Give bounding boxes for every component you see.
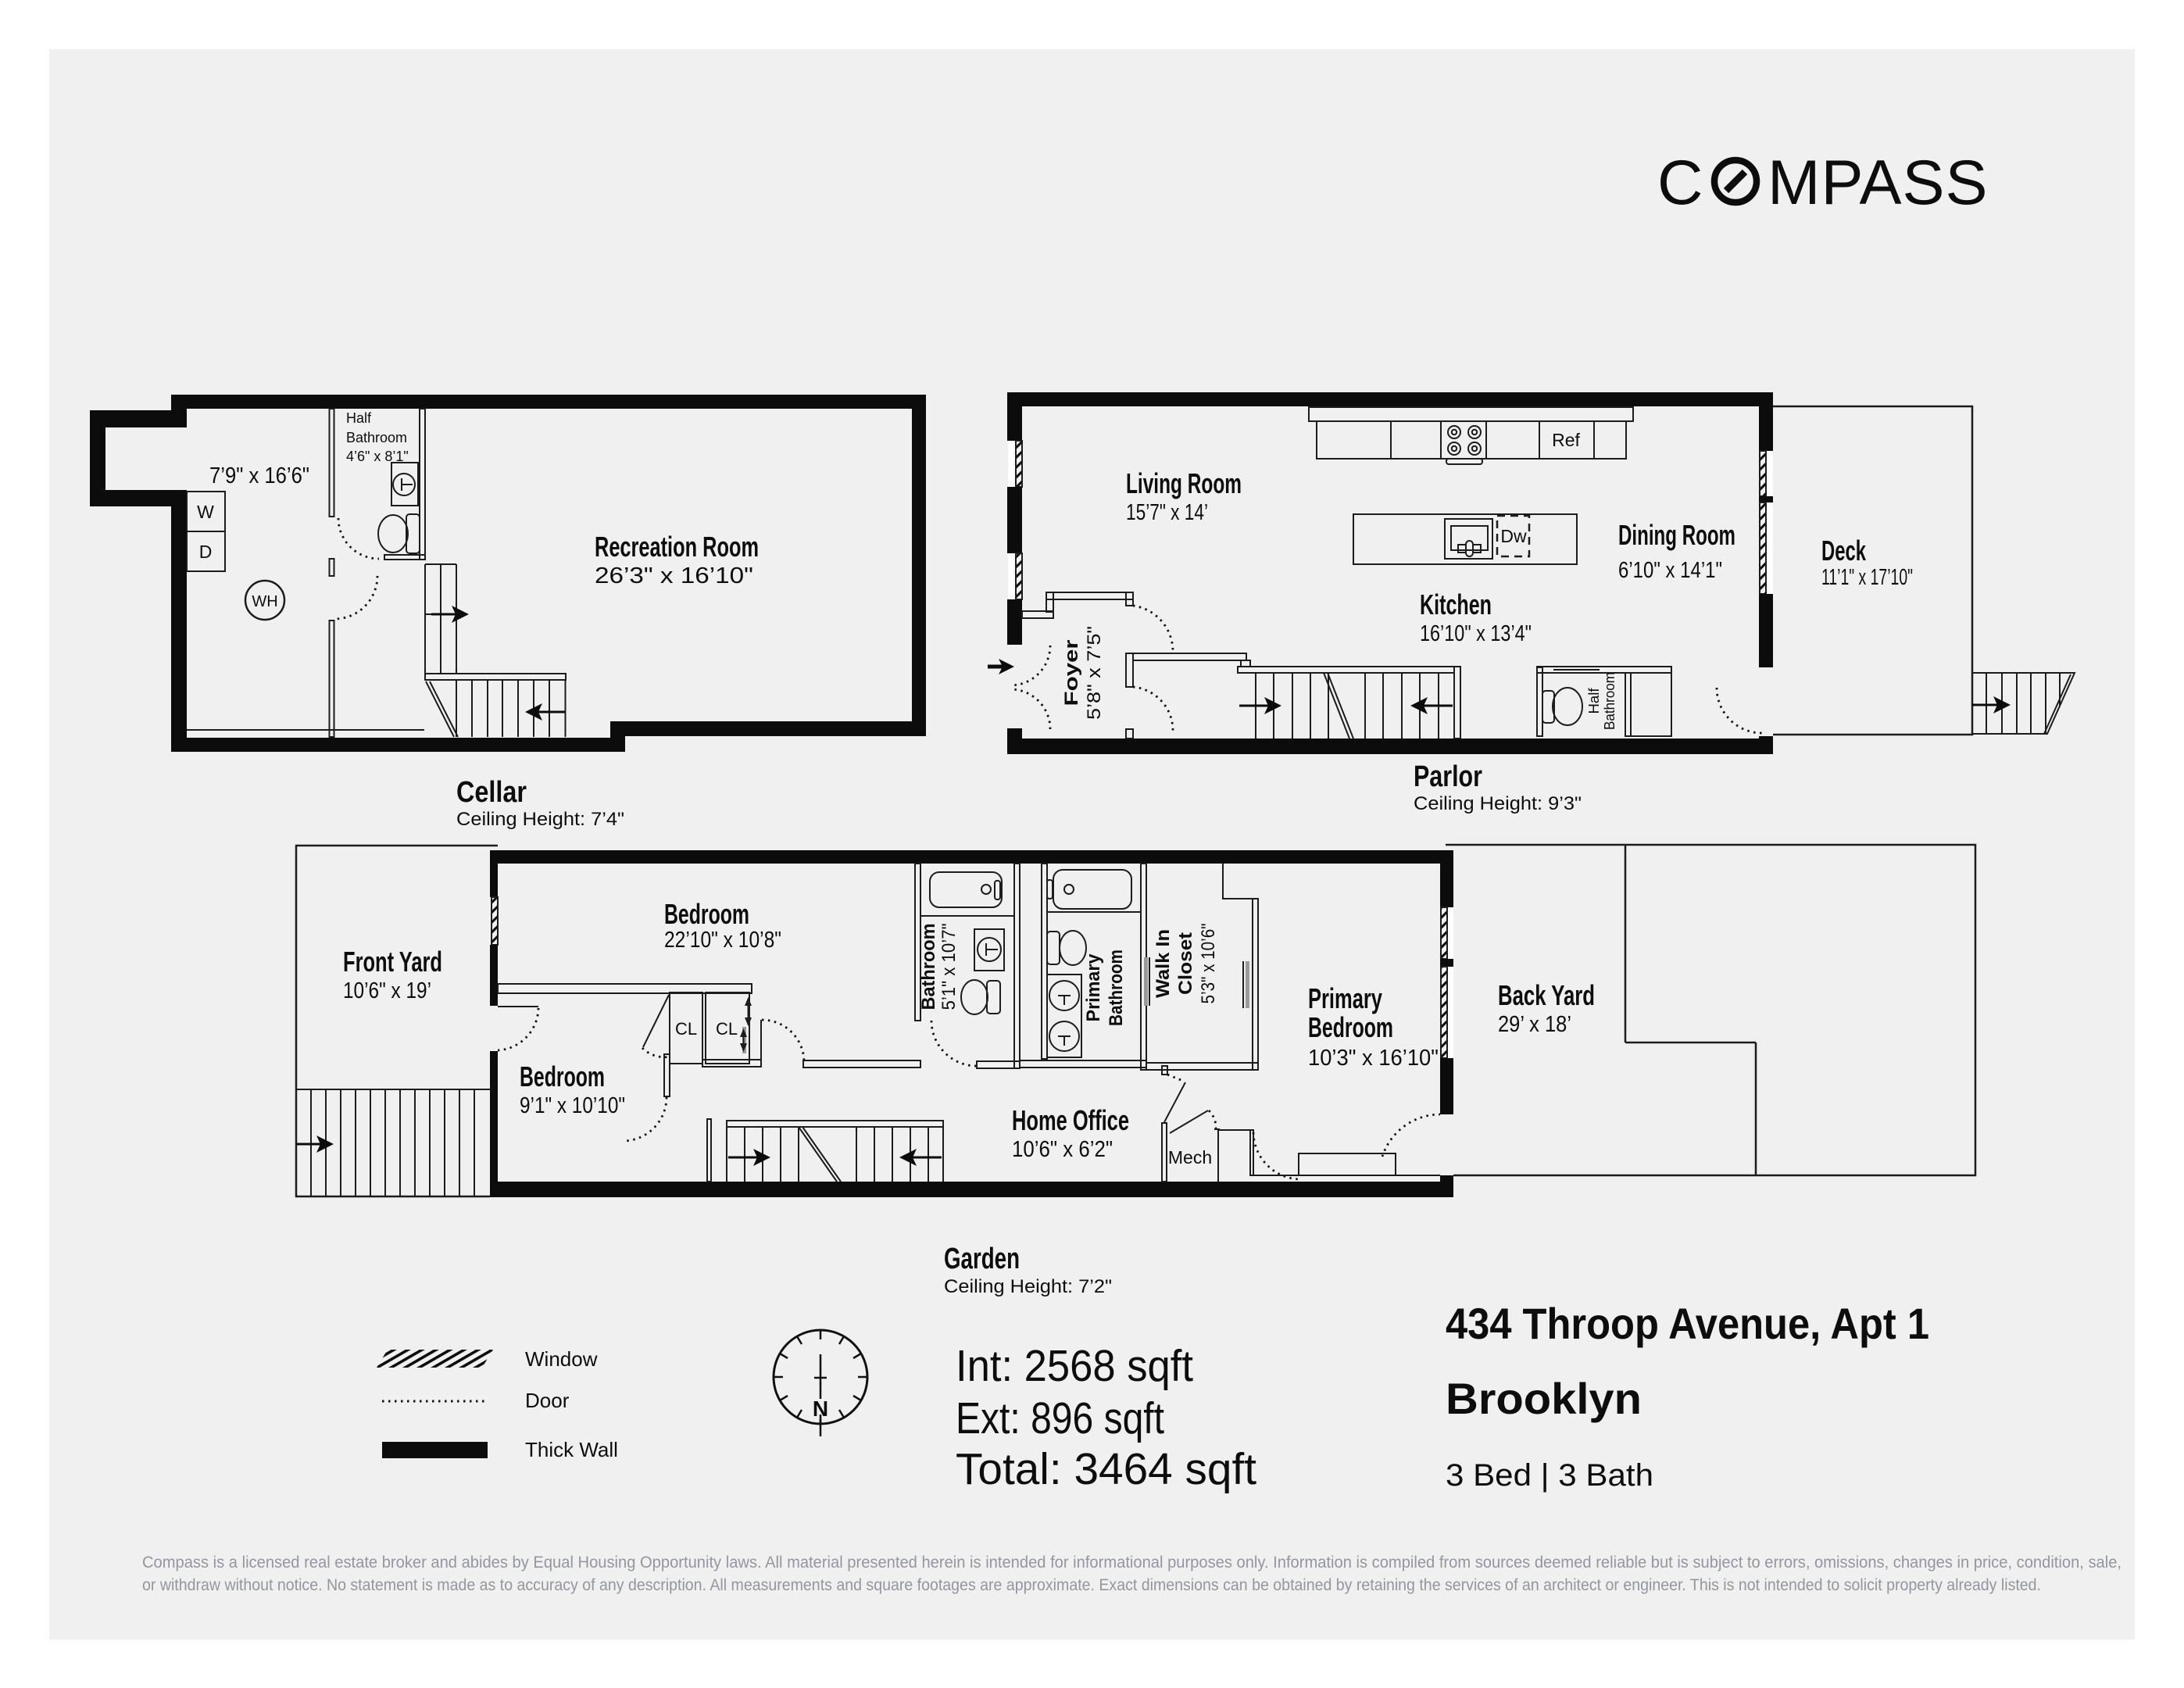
svg-text:Parlor: Parlor xyxy=(1414,760,1482,793)
svg-text:CL: CL xyxy=(716,1019,738,1039)
svg-text:16’10" x 13’4": 16’10" x 13’4" xyxy=(1420,621,1532,646)
svg-text:Half: Half xyxy=(1586,687,1602,713)
svg-text:or withdraw without notice. No: or withdraw without notice. No statement… xyxy=(142,1575,2041,1594)
svg-text:Bedroom: Bedroom xyxy=(1308,1011,1393,1043)
svg-text:Foyer: Foyer xyxy=(1061,640,1082,706)
svg-text:Walk In: Walk In xyxy=(1153,929,1174,998)
svg-text:Bathroom: Bathroom xyxy=(918,924,939,1010)
svg-text:5’3" x 10’6": 5’3" x 10’6" xyxy=(1198,924,1219,1004)
svg-text:MPASS: MPASS xyxy=(1768,148,1989,218)
svg-text:Window: Window xyxy=(525,1347,598,1371)
svg-text:3 Bed | 3 Bath: 3 Bed | 3 Bath xyxy=(1446,1458,1653,1493)
svg-text:D: D xyxy=(199,542,213,562)
svg-text:Dining Room: Dining Room xyxy=(1618,519,1735,551)
svg-text:11’1" x 17’10": 11’1" x 17’10" xyxy=(1821,565,1913,590)
svg-text:Primary: Primary xyxy=(1308,982,1382,1014)
svg-text:434 Throop Avenue, Apt 1: 434 Throop Avenue, Apt 1 xyxy=(1446,1299,1929,1348)
svg-text:Ceiling Height: 7’4": Ceiling Height: 7’4" xyxy=(456,809,624,830)
svg-text:Front Yard: Front Yard xyxy=(343,946,442,978)
svg-text:Primary: Primary xyxy=(1083,953,1104,1022)
svg-text:Deck: Deck xyxy=(1821,535,1867,567)
svg-text:Ceiling Height: 7’2": Ceiling Height: 7’2" xyxy=(944,1276,1112,1297)
svg-text:Home Office: Home Office xyxy=(1012,1104,1129,1136)
svg-text:4’6" x 8’1": 4’6" x 8’1" xyxy=(346,449,409,464)
svg-text:Int: 2568 sqft: Int: 2568 sqft xyxy=(956,1341,1193,1391)
svg-text:5’1" x 10’7": 5’1" x 10’7" xyxy=(938,924,960,1010)
svg-text:7’9" x 16’6": 7’9" x 16’6" xyxy=(209,463,309,488)
svg-text:Bathroom: Bathroom xyxy=(1106,949,1127,1026)
svg-text:Half: Half xyxy=(346,410,372,426)
svg-text:29’ x 18’: 29’ x 18’ xyxy=(1498,1012,1571,1037)
svg-text:N: N xyxy=(813,1397,828,1421)
svg-text:W: W xyxy=(197,502,214,522)
svg-text:Back Yard: Back Yard xyxy=(1498,979,1595,1011)
svg-text:Compass is a licensed real est: Compass is a licensed real estate broker… xyxy=(142,1553,2121,1572)
svg-text:Door: Door xyxy=(525,1389,570,1412)
svg-text:9’1" x 10’10": 9’1" x 10’10" xyxy=(520,1093,625,1118)
svg-text:Ceiling Height: 9’3": Ceiling Height: 9’3" xyxy=(1414,793,1582,814)
svg-text:10’3" x 16’10": 10’3" x 16’10" xyxy=(1308,1046,1439,1071)
svg-text:Ref: Ref xyxy=(1552,430,1580,450)
svg-text:Bedroom: Bedroom xyxy=(520,1060,605,1093)
svg-text:CL: CL xyxy=(675,1019,697,1039)
svg-text:5’8" x 7’5": 5’8" x 7’5" xyxy=(1084,626,1105,720)
svg-text:Bathroom: Bathroom xyxy=(346,430,407,445)
svg-text:Bathroom: Bathroom xyxy=(1602,672,1617,730)
svg-text:Dw: Dw xyxy=(1500,526,1527,546)
svg-text:Thick Wall: Thick Wall xyxy=(525,1438,618,1461)
svg-text:Ext: 896 sqft: Ext: 896 sqft xyxy=(956,1393,1164,1443)
svg-text:6’10" x 14’1": 6’10" x 14’1" xyxy=(1618,558,1722,583)
svg-text:Brooklyn: Brooklyn xyxy=(1446,1374,1642,1423)
svg-text:10’6" x 19’: 10’6" x 19’ xyxy=(343,978,431,1003)
svg-text:15’7" x 14’: 15’7" x 14’ xyxy=(1126,500,1208,525)
svg-text:10’6" x 6’2": 10’6" x 6’2" xyxy=(1012,1137,1113,1162)
svg-text:Garden: Garden xyxy=(944,1243,1020,1275)
svg-text:Bedroom: Bedroom xyxy=(664,898,749,930)
svg-text:Kitchen: Kitchen xyxy=(1420,588,1492,620)
svg-text:22’10" x 10’8": 22’10" x 10’8" xyxy=(664,928,781,953)
svg-text:C: C xyxy=(1657,148,1704,218)
svg-text:Closet: Closet xyxy=(1175,932,1196,995)
svg-text:WH: WH xyxy=(252,593,277,610)
svg-text:Total: 3464 sqft: Total: 3464 sqft xyxy=(956,1444,1256,1494)
svg-text:Mech: Mech xyxy=(1168,1147,1212,1168)
svg-text:Recreation Room: Recreation Room xyxy=(595,531,759,563)
svg-text:Living Room: Living Room xyxy=(1126,467,1242,499)
svg-text:26’3" x 16’10": 26’3" x 16’10" xyxy=(595,563,753,588)
svg-text:Cellar: Cellar xyxy=(456,776,527,809)
